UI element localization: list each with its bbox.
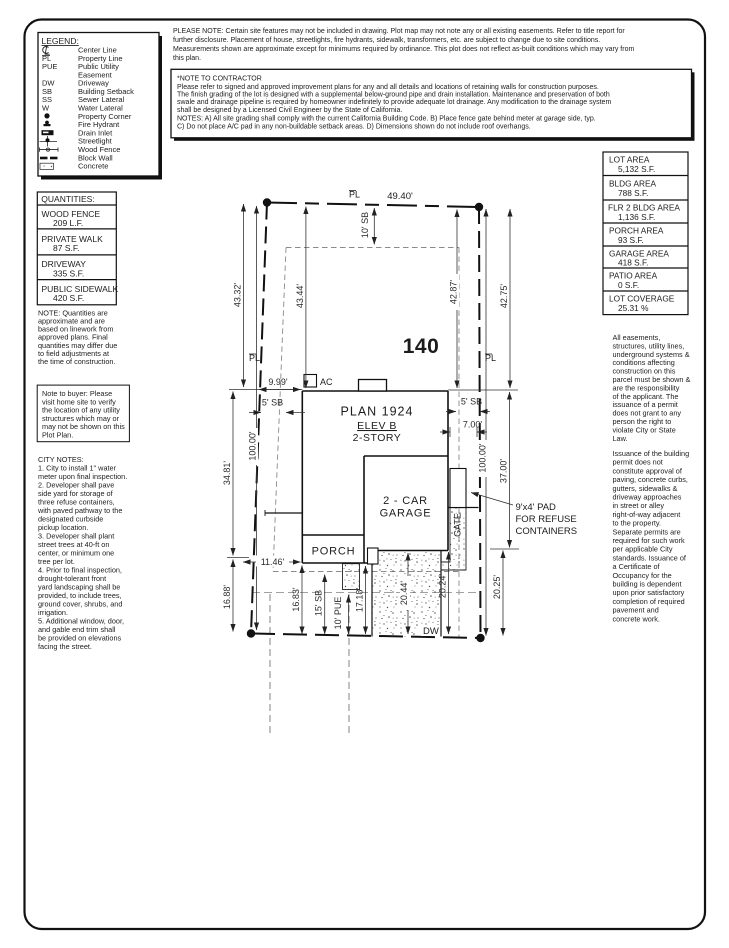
svg-text:Please refer to signed and app: Please refer to signed and approved impr… [177, 84, 599, 91]
svg-text:25.31 %: 25.31 % [618, 303, 649, 313]
svg-text:PL: PL [249, 353, 260, 363]
svg-text:1,136 S.F.: 1,136 S.F. [618, 212, 655, 222]
svg-text:GARAGE: GARAGE [380, 508, 432, 520]
svg-text:right-of-way adjacent: right-of-way adjacent [613, 510, 681, 519]
svg-text:W: W [42, 104, 50, 113]
svg-text:16.88': 16.88' [222, 585, 232, 610]
svg-text:87 S.F.: 87 S.F. [53, 243, 79, 253]
svg-text:Concrete: Concrete [78, 162, 108, 171]
svg-text:GATE: GATE [453, 513, 463, 537]
svg-text:43.44': 43.44' [295, 284, 305, 309]
svg-text:NOTES: A) All site grading s: NOTES: A) All site grading shall comply … [177, 115, 596, 122]
svg-text:The finish grading of the lot: The finish grading of the lot is designe… [177, 92, 610, 99]
svg-text:permit does not: permit does not [613, 458, 663, 467]
svg-text:11.46': 11.46' [261, 557, 285, 567]
svg-text:20.44': 20.44' [399, 581, 409, 606]
svg-text:9.99': 9.99' [268, 377, 288, 387]
svg-text:LEGEND:: LEGEND: [42, 36, 79, 46]
svg-text:to the property.: to the property. [613, 519, 662, 528]
svg-text:Issuance of the building: Issuance of the building [613, 449, 690, 458]
svg-text:Law.: Law. [613, 434, 628, 443]
svg-text:FOR REFUSE: FOR REFUSE [516, 514, 577, 525]
svg-text:17.18': 17.18' [355, 588, 365, 613]
svg-text:FLR 2 BLDG AREA: FLR 2 BLDG AREA [608, 203, 680, 213]
svg-text:C) Do not place A/C pad in any: C) Do not place A/C pad in any non-build… [177, 123, 531, 130]
svg-text:this plan.: this plan. [173, 55, 201, 62]
svg-text:15' SB: 15' SB [314, 590, 324, 616]
svg-text:pavement and: pavement and [613, 606, 659, 615]
svg-text:AC: AC [320, 377, 333, 387]
svg-text:10' SB: 10' SB [360, 212, 370, 238]
svg-text:418 S.F.: 418 S.F. [618, 258, 648, 268]
svg-text:100.00': 100.00' [478, 443, 488, 473]
svg-text:completion of required: completion of required [613, 597, 685, 606]
svg-text:building is dependent: building is dependent [613, 580, 682, 589]
svg-text:per applicable City: per applicable City [613, 545, 673, 554]
svg-text:facing the street.: facing the street. [38, 642, 92, 651]
svg-text:42.87': 42.87' [449, 280, 459, 305]
svg-text:10' PUE: 10' PUE [333, 597, 343, 630]
svg-text:0 S.F.: 0 S.F. [618, 280, 639, 290]
svg-text:PUE: PUE [42, 62, 57, 71]
svg-text:in street or alley: in street or alley [613, 501, 665, 510]
svg-text:swale and drainage pipeline is: swale and drainage pipeline is required … [177, 99, 611, 106]
svg-text:5' SB: 5' SB [461, 397, 482, 407]
svg-text:PATIO AREA: PATIO AREA [609, 271, 658, 281]
svg-text:BLDG AREA: BLDG AREA [609, 179, 657, 189]
svg-text:PL: PL [349, 190, 360, 200]
svg-text:140: 140 [403, 335, 440, 358]
svg-text:ELEV B: ELEV B [357, 420, 397, 432]
svg-text:2 - CAR: 2 - CAR [383, 495, 428, 507]
svg-text:driveway approaches: driveway approaches [613, 493, 682, 502]
svg-text:5' SB: 5' SB [262, 398, 283, 408]
svg-text:7.00': 7.00' [463, 420, 483, 430]
svg-text:PORCH AREA: PORCH AREA [609, 226, 664, 236]
svg-text:34.81': 34.81' [222, 461, 232, 486]
svg-text:Separate permits are: Separate permits are [613, 527, 681, 536]
svg-text:the time of construction.: the time of construction. [38, 357, 115, 366]
svg-text:PLAN 1924: PLAN 1924 [341, 405, 414, 419]
svg-text:2-STORY: 2-STORY [353, 432, 402, 444]
svg-text:93 S.F.: 93 S.F. [618, 235, 644, 245]
svg-text:further disclosure. Placement: further disclosure. Placement of house, … [173, 37, 600, 44]
svg-text:5,132 S.F.: 5,132 S.F. [618, 164, 655, 174]
svg-text:43.32': 43.32' [233, 283, 243, 308]
svg-text:CONTAINERS: CONTAINERS [516, 526, 578, 537]
svg-text:335 S.F.: 335 S.F. [53, 268, 84, 278]
svg-text:standards. Issuance of: standards. Issuance of [613, 553, 687, 562]
svg-text:LOT AREA: LOT AREA [609, 155, 650, 165]
svg-text:20.24': 20.24' [438, 574, 448, 599]
svg-text:LOT COVERAGE: LOT COVERAGE [609, 294, 675, 304]
svg-text:QUANTITIES:: QUANTITIES: [41, 194, 94, 204]
svg-text:paving, concrete curbs,: paving, concrete curbs, [613, 475, 688, 484]
svg-text:42.75': 42.75' [499, 284, 509, 309]
svg-text:gutters, sidewalks &: gutters, sidewalks & [613, 484, 678, 493]
svg-text:37.00': 37.00' [499, 459, 509, 484]
svg-text:DW: DW [423, 626, 439, 637]
svg-text:49.40': 49.40' [387, 191, 413, 202]
svg-text:Occupancy for the: Occupancy for the [613, 571, 672, 580]
svg-text:9'x4' PAD: 9'x4' PAD [516, 502, 557, 513]
svg-text:a Certificate of: a Certificate of [613, 562, 661, 571]
svg-text:209 L.F.: 209 L.F. [53, 218, 83, 228]
svg-text:Plot Plan.: Plot Plan. [42, 431, 73, 440]
svg-text:20.25': 20.25' [492, 575, 502, 600]
svg-text:788 S.F.: 788 S.F. [618, 188, 648, 198]
svg-text:Measurements shown are approxi: Measurements shown are approximate excep… [173, 46, 634, 53]
svg-text:PL: PL [485, 353, 496, 363]
svg-text:PORCH: PORCH [312, 546, 356, 558]
svg-text:100.00': 100.00' [248, 431, 258, 461]
svg-text:constitute approval of: constitute approval of [613, 466, 683, 475]
svg-text:required for such work: required for such work [613, 536, 686, 545]
svg-text:PLEASE NOTE: Certain site fea: PLEASE NOTE: Certain site features may n… [173, 28, 625, 35]
svg-text:420 S.F.: 420 S.F. [53, 293, 84, 303]
svg-text:*NOTE TO CONTRACTOR: *NOTE TO CONTRACTOR [177, 76, 262, 83]
svg-text:concrete work.: concrete work. [613, 614, 660, 623]
svg-text:shall be designed by a License: shall be designed by a Licensed Civil En… [177, 107, 402, 114]
svg-text:16.83': 16.83' [291, 587, 301, 612]
svg-text:upon prior satisfactory: upon prior satisfactory [613, 588, 685, 597]
